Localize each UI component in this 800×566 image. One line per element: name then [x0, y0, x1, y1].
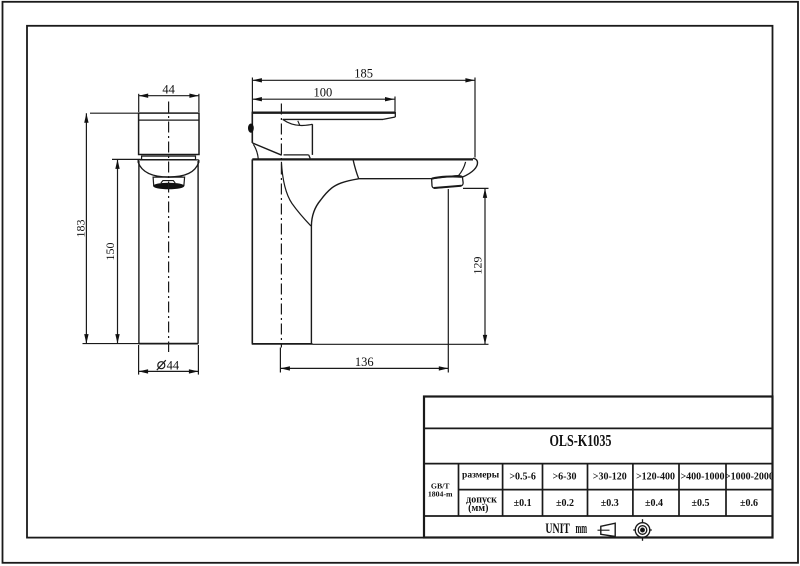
svg-text:129: 129: [470, 257, 484, 275]
svg-text:>400-1000: >400-1000: [680, 471, 724, 482]
svg-text:OLS-K1035: OLS-K1035: [550, 431, 612, 450]
svg-text:mm: mm: [576, 520, 588, 537]
svg-text:>0.5-6: >0.5-6: [509, 471, 536, 482]
svg-text:>120-400: >120-400: [636, 471, 675, 482]
svg-text:±0.3: ±0.3: [601, 498, 619, 509]
svg-text:>6-30: >6-30: [552, 471, 576, 482]
svg-text:44: 44: [167, 358, 180, 372]
svg-text:размеры: размеры: [462, 471, 500, 481]
svg-text:±0.5: ±0.5: [692, 498, 710, 509]
svg-text:136: 136: [355, 355, 374, 369]
svg-text:44: 44: [162, 82, 175, 96]
svg-text:>30-120: >30-120: [593, 471, 627, 482]
svg-text:>1000-2000: >1000-2000: [725, 471, 774, 482]
svg-text:185: 185: [354, 67, 373, 81]
svg-text:±0.1: ±0.1: [514, 498, 532, 509]
svg-text:(мм): (мм): [468, 503, 488, 514]
svg-text:100: 100: [314, 85, 333, 99]
svg-text:183: 183: [74, 220, 88, 238]
svg-text:UNIT: UNIT: [545, 520, 570, 537]
svg-text:±0.6: ±0.6: [740, 498, 758, 509]
svg-text:150: 150: [103, 243, 117, 261]
svg-text:1804-m: 1804-m: [428, 489, 453, 498]
svg-text:±0.4: ±0.4: [645, 498, 663, 509]
svg-text:±0.2: ±0.2: [556, 498, 574, 509]
